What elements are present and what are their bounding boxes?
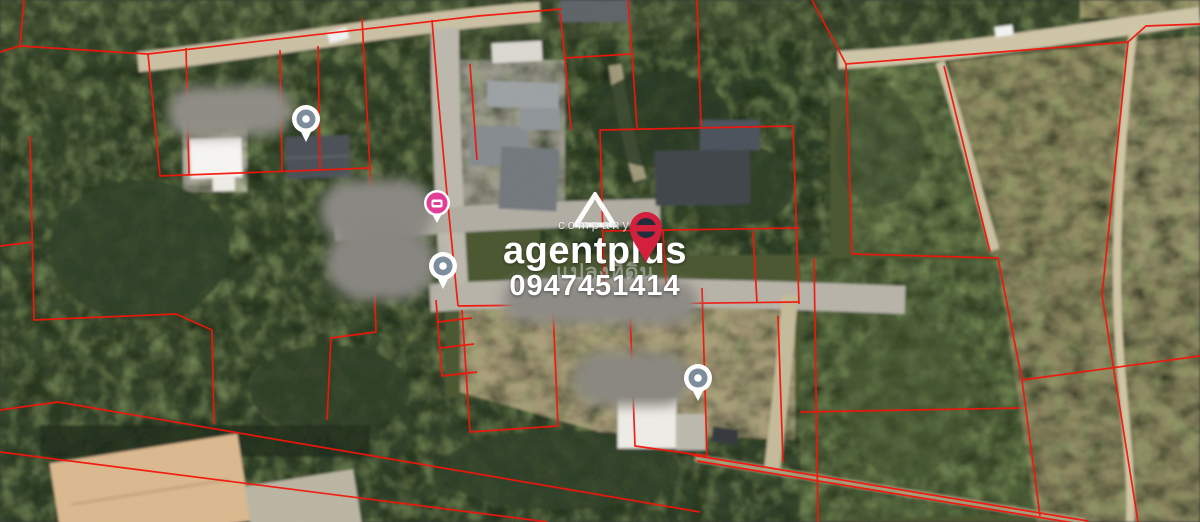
poi-marker[interactable] bbox=[289, 104, 323, 149]
watermark-phone: 0947451414 bbox=[455, 271, 735, 301]
map-canvas[interactable]: แปลงที่ดิน company agentplus 0947451414 bbox=[0, 0, 1200, 522]
blurred-label bbox=[326, 228, 436, 300]
poi-marker-pink-store[interactable] bbox=[421, 189, 453, 230]
blurred-label bbox=[574, 352, 690, 406]
brand-location-pin[interactable] bbox=[626, 210, 666, 271]
blurred-label bbox=[167, 84, 293, 138]
brand-watermark: company agentplus 0947451414 bbox=[455, 192, 735, 301]
poi-marker[interactable] bbox=[681, 363, 715, 408]
watermark-brand: agentplus bbox=[455, 232, 735, 271]
